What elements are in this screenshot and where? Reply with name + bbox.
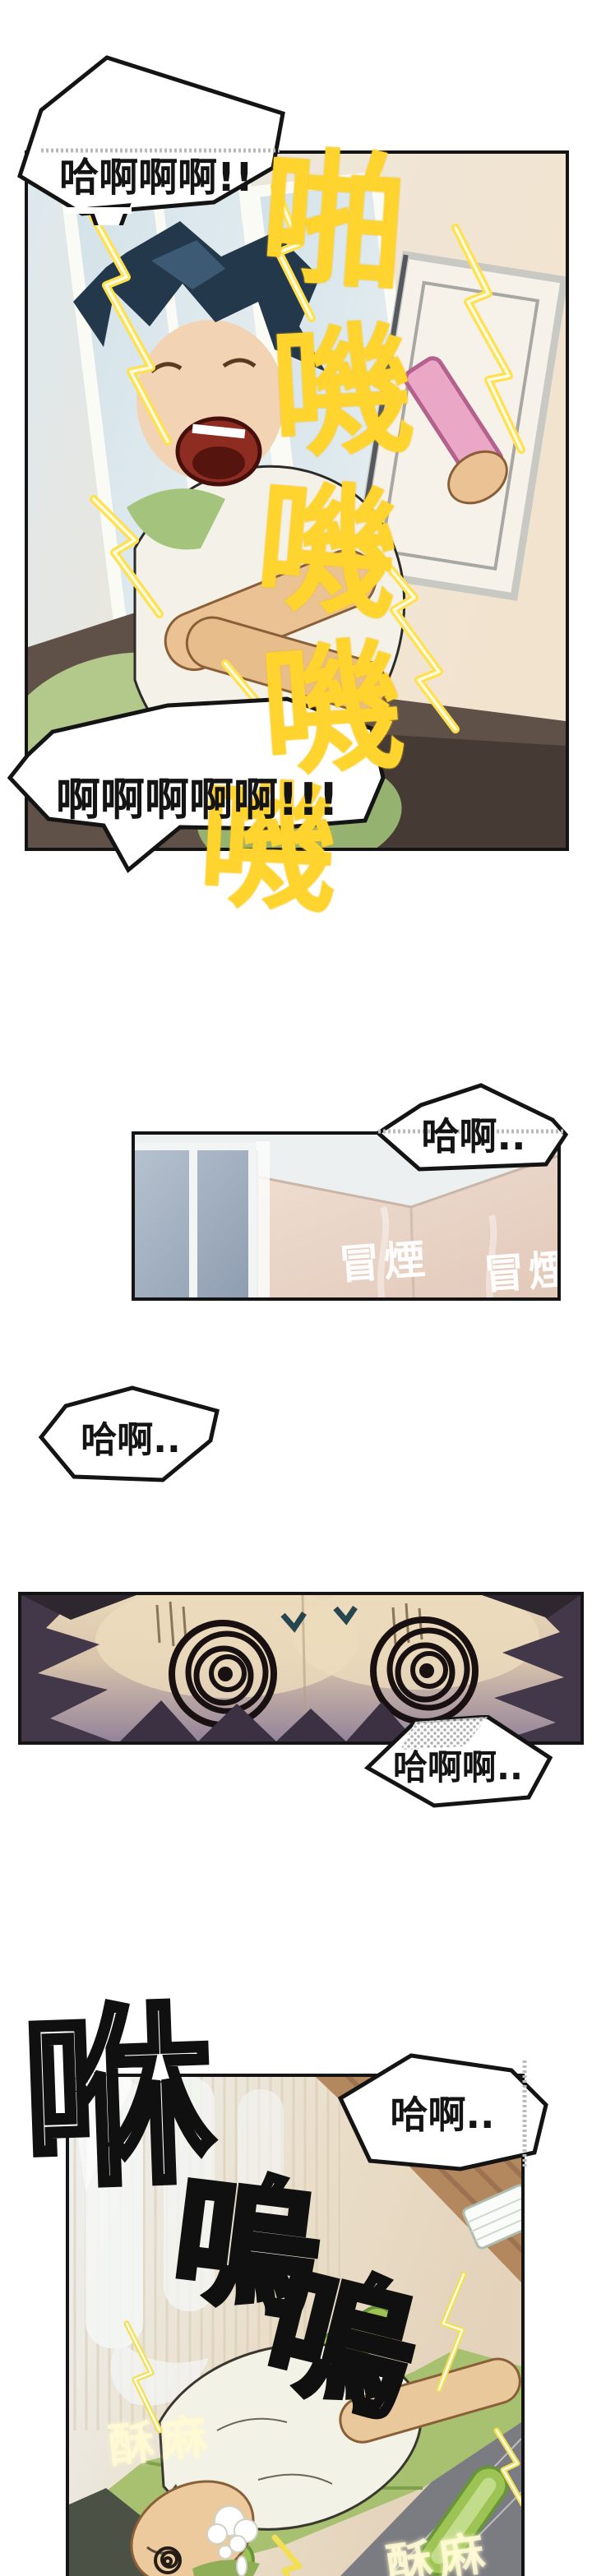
speech-bubble-3: 哈啊.. <box>370 1082 571 1174</box>
sfx-tingle-label-1: 酥麻 <box>106 2413 215 2470</box>
speech-bubble-5: 哈啊啊.. <box>364 1715 555 1812</box>
speech-bubble-6-text: 哈啊.. <box>391 2093 495 2137</box>
speech-bubble-1: 哈啊啊啊!! <box>8 53 288 225</box>
speech-bubble-2-text: 啊啊啊啊啊!!! <box>25 763 370 828</box>
speech-bubble-5-text: 哈啊啊.. <box>393 1747 523 1787</box>
window-left <box>135 1141 270 1297</box>
speech-bubble-4: 哈啊.. <box>38 1385 224 1485</box>
sfx-smoke-label-1: 冒煙 <box>337 1238 430 1286</box>
sfx-crackle-2: 嘰 <box>268 319 417 468</box>
curtain <box>257 1141 270 1297</box>
sfx-crackle-1: 啪 <box>257 145 411 299</box>
speech-bubble-6: 哈啊.. <box>337 2052 557 2176</box>
speech-bubble-3-text: 哈啊.. <box>422 1114 526 1159</box>
comic-page: 啪 嘰 嘰 嘰 嘰 哈啊啊啊!! 啊啊啊啊啊!!! <box>0 0 592 2576</box>
speech-bubble-4-text: 哈啊.. <box>81 1419 180 1461</box>
sfx-smoke-label-2: 冒煙 <box>482 1248 561 1296</box>
sfx-crackle-3: 嘰 <box>251 475 404 628</box>
speech-bubble-1-text: 哈啊啊啊!! <box>59 155 253 201</box>
